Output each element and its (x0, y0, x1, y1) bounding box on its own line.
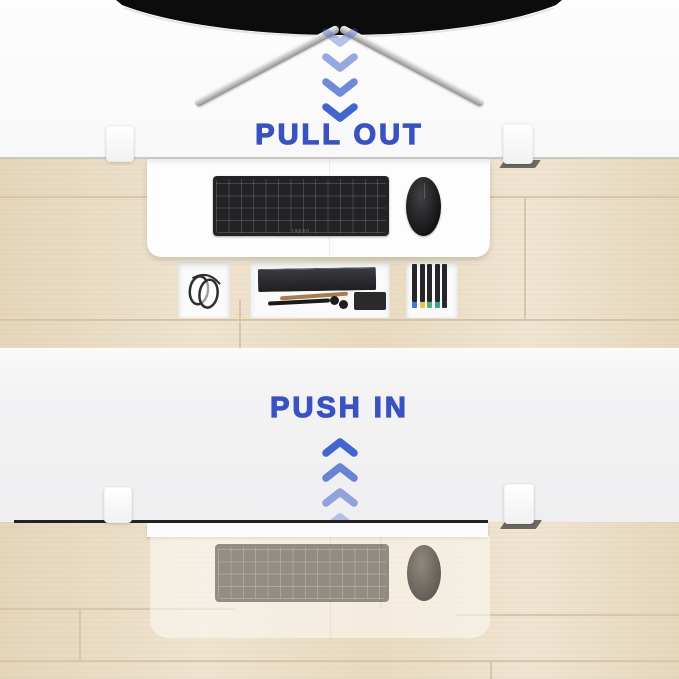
desk-clamp-left (106, 126, 134, 162)
product-image: PULL OUT rapoo (0, 0, 679, 679)
black-pen (268, 298, 330, 305)
tablet (258, 267, 376, 292)
organizer-compartment-glasses (178, 262, 230, 318)
desk-clamp-right (504, 484, 534, 524)
marker-tip (435, 302, 440, 308)
chevron-up-icon (320, 486, 360, 507)
plank-seam (239, 300, 241, 348)
eyeglasses (178, 262, 231, 318)
pull-out-panel: PULL OUT rapoo (0, 0, 679, 348)
ghost-keyboard (215, 544, 389, 602)
plank-seam (524, 198, 526, 319)
plank-seam (0, 660, 679, 662)
chevron-down-icon (320, 28, 360, 49)
marker-pens (412, 264, 447, 302)
plank-seam (0, 319, 679, 321)
chevron-down-icon (320, 53, 360, 74)
ghost-keyboard-keys (218, 547, 386, 599)
organizer-compartment-main (250, 262, 390, 318)
plank-seam (490, 660, 492, 679)
earbud (339, 300, 348, 309)
marker-tip (442, 302, 447, 308)
mouse (406, 177, 441, 236)
push-in-arrows (0, 436, 679, 532)
push-in-panel: PUSH IN (0, 348, 679, 679)
marker-tip (420, 302, 425, 308)
pull-out-label: PULL OUT (0, 119, 679, 152)
keyboard: rapoo (213, 176, 389, 236)
keyboard-keys (216, 179, 386, 233)
pull-out-arrows (0, 28, 679, 124)
desk-clamp-right (503, 124, 533, 164)
marker-pen (435, 264, 440, 302)
keyboard-brand: rapoo (213, 228, 389, 234)
earbud (330, 296, 339, 305)
marker-pen (412, 264, 417, 302)
keyboard-tray: rapoo (147, 159, 490, 257)
organizer-compartment-pens (406, 262, 458, 318)
marker-pen (420, 264, 425, 302)
ghost-mouse (407, 545, 441, 601)
chevron-up-icon (320, 461, 360, 482)
marker-pen (427, 264, 432, 302)
chevron-up-icon (320, 436, 360, 457)
tray-front-edge (147, 523, 488, 537)
hidden-tray-under-desk (150, 536, 490, 638)
marker-tip (412, 302, 417, 308)
chevron-down-icon (320, 78, 360, 99)
desk-clamp-left (104, 487, 132, 523)
marker-tip (427, 302, 432, 308)
plank-seam (79, 608, 81, 660)
small-black-box (354, 292, 386, 310)
marker-pen (442, 264, 447, 302)
push-in-label: PUSH IN (0, 392, 679, 425)
